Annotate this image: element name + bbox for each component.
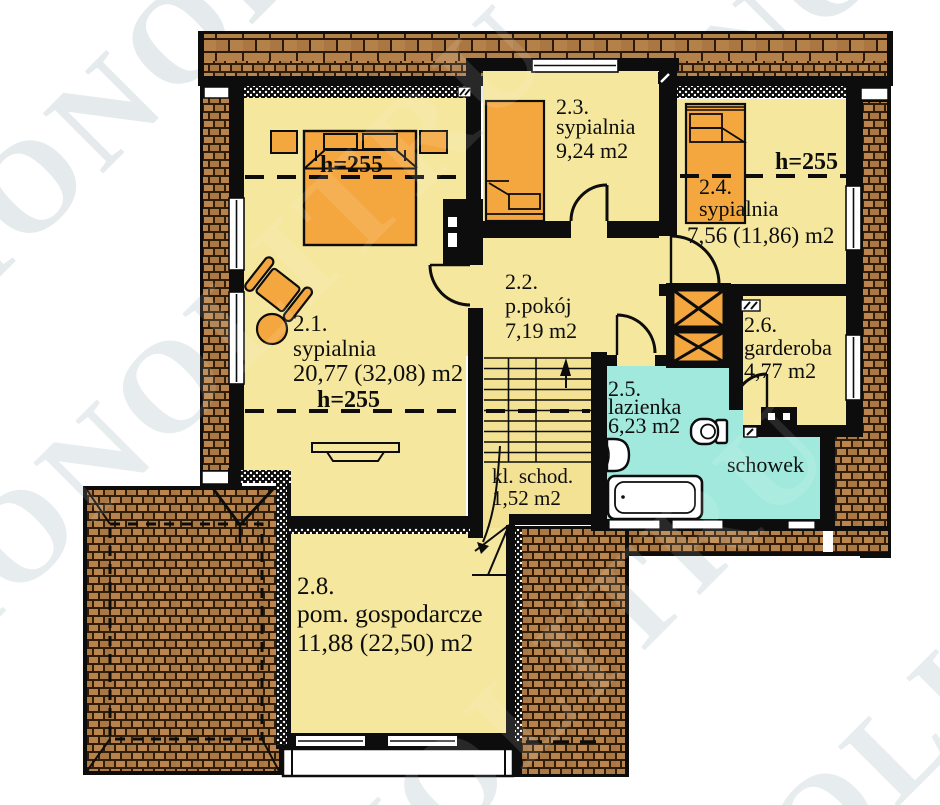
svg-text:h=255: h=255 xyxy=(775,149,838,175)
svg-text:7,19 m2: 7,19 m2 xyxy=(505,318,577,343)
svg-text:1,52 m2: 1,52 m2 xyxy=(492,486,561,510)
svg-text:garderoba: garderoba xyxy=(744,335,832,360)
svg-text:2.6.: 2.6. xyxy=(744,312,777,337)
svg-text:2.8.: 2.8. xyxy=(297,573,335,600)
svg-text:h=255: h=255 xyxy=(317,387,380,413)
svg-text:kl. schod.: kl. schod. xyxy=(492,464,573,488)
svg-text:11,88 (22,50) m2: 11,88 (22,50) m2 xyxy=(297,628,473,657)
svg-text:sypialnia: sypialnia xyxy=(699,196,779,221)
svg-text:2.2.: 2.2. xyxy=(505,269,538,294)
svg-text:7,56 (11,86) m2: 7,56 (11,86) m2 xyxy=(687,223,834,248)
svg-text:p.pokój: p.pokój xyxy=(505,293,572,318)
svg-text:6,23 m2: 6,23 m2 xyxy=(608,413,680,438)
svg-text:pom. gospodarcze: pom. gospodarcze xyxy=(297,599,483,628)
svg-text:9,24 m2: 9,24 m2 xyxy=(556,138,628,163)
svg-text:sypialnia: sypialnia xyxy=(556,114,636,139)
svg-text:20,77 (32,08) m2: 20,77 (32,08) m2 xyxy=(293,360,463,387)
